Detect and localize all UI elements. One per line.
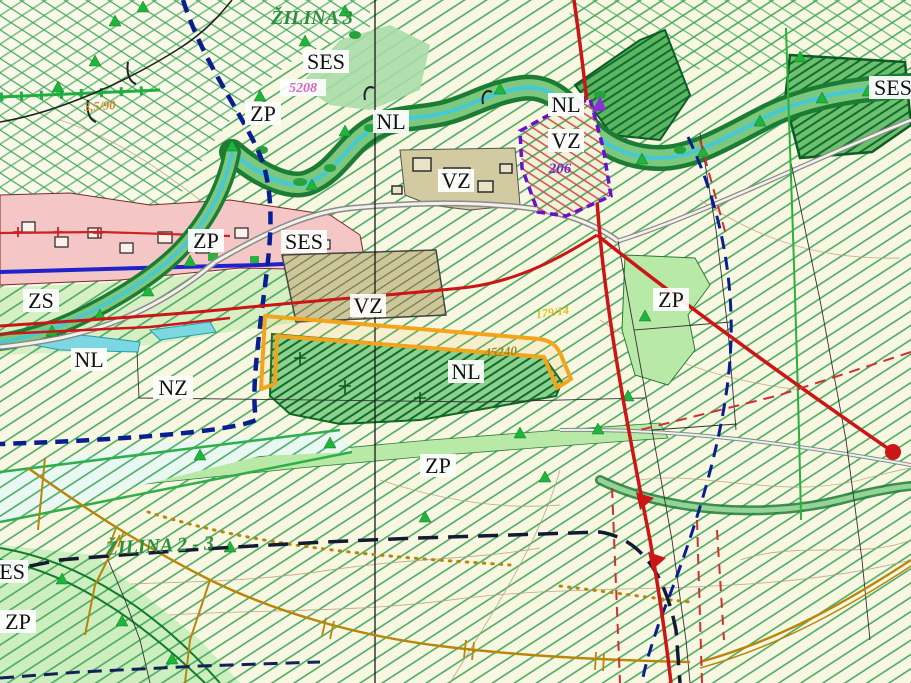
zone-label: SES — [285, 229, 323, 254]
zone-label: ZS — [28, 288, 54, 313]
zone-label: ZP — [250, 101, 276, 126]
zone-label: NL — [74, 347, 103, 372]
zone-label: NZ — [158, 375, 187, 400]
district-label-zilina3: ŽILINA 3 — [270, 5, 353, 29]
zone-label: ZP — [425, 453, 451, 478]
parcel-number: 206 — [548, 161, 572, 177]
parcel-number: 5208 — [289, 81, 317, 96]
parcel-number: 3,5/90 — [82, 98, 116, 114]
zone-label: VZ — [551, 128, 580, 153]
red-endpoint-dot — [885, 444, 901, 460]
zone-label: SES — [874, 75, 911, 100]
zone-label: VZ — [353, 293, 382, 318]
zone-label: NL — [376, 109, 405, 134]
zone-label: ZP — [5, 609, 31, 634]
zone-label: ZP — [658, 287, 684, 312]
zone-label: SES — [307, 49, 345, 74]
green-plot — [250, 256, 259, 263]
zone-label: NL — [551, 92, 580, 117]
zone-label: VZ — [441, 168, 470, 193]
map-canvas[interactable]: ŽILINA 3 ŽILINA 2 - 3 SES ZP NL NL VZ VZ… — [0, 0, 911, 683]
zone-label: NL — [451, 359, 480, 384]
zone-label: SES — [0, 559, 25, 584]
zone-label: ZP — [193, 228, 219, 253]
parcel-number: 45240 — [483, 343, 518, 360]
